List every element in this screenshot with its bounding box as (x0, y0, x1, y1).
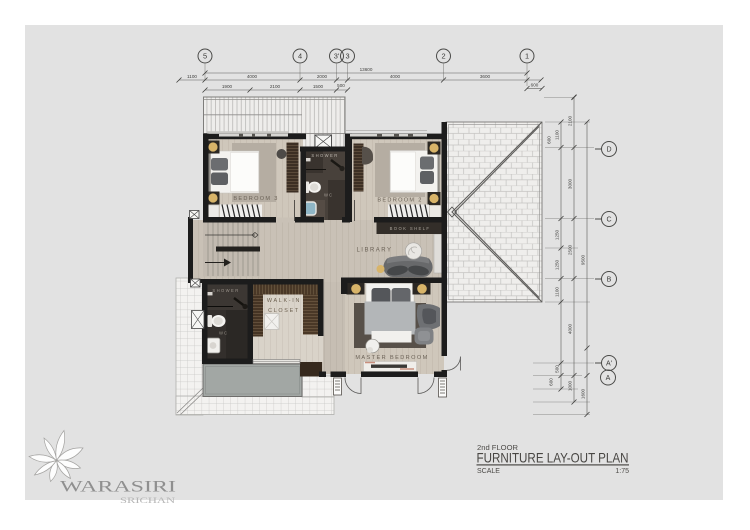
svg-text:LIBRARY: LIBRARY (356, 248, 392, 254)
svg-text:SHOWER: SHOWER (311, 153, 338, 158)
svg-text:500: 500 (555, 365, 560, 373)
svg-text:600: 600 (547, 136, 552, 144)
svg-text:A: A (606, 375, 611, 382)
svg-text:2100: 2100 (270, 84, 281, 89)
svg-text:1500: 1500 (313, 84, 324, 89)
svg-text:SCALE: SCALE (477, 468, 500, 475)
svg-text:BEDROOM 3: BEDROOM 3 (233, 196, 278, 202)
svg-text:4000: 4000 (247, 74, 258, 79)
svg-text:1100: 1100 (187, 74, 197, 79)
svg-text:2500: 2500 (568, 244, 573, 255)
svg-text:A': A' (606, 360, 612, 367)
svg-text:4000: 4000 (390, 74, 401, 79)
svg-text:600: 600 (549, 378, 554, 386)
svg-text:1600: 1600 (581, 388, 586, 399)
svg-text:CLOSET: CLOSET (268, 308, 300, 314)
svg-text:D: D (606, 147, 611, 154)
svg-text:3000: 3000 (568, 178, 573, 189)
svg-text:1900: 1900 (222, 84, 233, 89)
svg-text:WARASIRI: WARASIRI (60, 479, 176, 496)
svg-text:3': 3' (334, 52, 340, 61)
svg-text:C: C (606, 217, 611, 224)
svg-text:BEDROOM 2: BEDROOM 2 (377, 198, 422, 204)
svg-text:1250: 1250 (555, 259, 560, 270)
svg-text:1: 1 (525, 52, 529, 61)
svg-text:1:75: 1:75 (615, 468, 629, 475)
svg-text:SRICHAN: SRICHAN (120, 496, 175, 505)
svg-text:BOOK SHELF: BOOK SHELF (390, 226, 431, 231)
svg-text:MASTER BEDROOM: MASTER BEDROOM (355, 355, 428, 361)
svg-text:4: 4 (298, 52, 302, 61)
svg-text:13600: 13600 (360, 67, 373, 72)
svg-text:3: 3 (345, 52, 349, 61)
svg-text:500: 500 (337, 83, 345, 88)
svg-text:2: 2 (441, 52, 445, 61)
svg-text:2000: 2000 (317, 74, 328, 79)
svg-text:5: 5 (203, 52, 207, 61)
svg-text:1100: 1100 (555, 287, 560, 297)
svg-text:3600: 3600 (480, 74, 491, 79)
svg-text:4000: 4000 (568, 323, 573, 334)
svg-text:9500: 9500 (581, 254, 586, 265)
svg-text:2100: 2100 (568, 115, 573, 126)
svg-text:B: B (607, 277, 612, 284)
svg-text:WALK-IN: WALK-IN (267, 298, 301, 304)
svg-text:1100: 1100 (555, 130, 560, 140)
svg-text:WC: WC (219, 331, 228, 336)
svg-text:SHOWER: SHOWER (212, 288, 239, 293)
svg-text:WC: WC (324, 193, 333, 198)
svg-text:1000: 1000 (568, 380, 573, 391)
svg-text:1250: 1250 (555, 229, 560, 240)
svg-text:600: 600 (531, 83, 539, 88)
svg-text:FURNITURE LAY-OUT PLAN: FURNITURE LAY-OUT PLAN (477, 451, 629, 466)
